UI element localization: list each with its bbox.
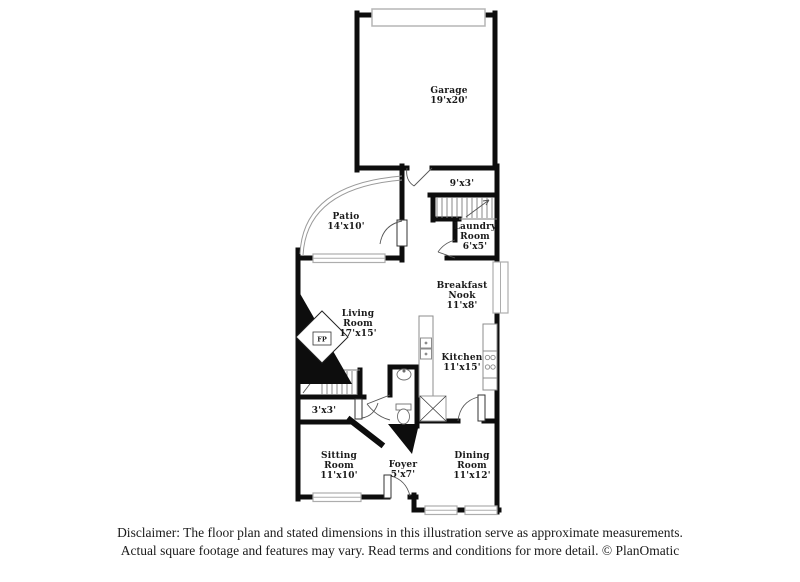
staircase-upper [437,197,497,219]
door-swing [362,403,378,418]
angled-wall-wedge [388,424,419,454]
breakfast-nook-dims: 11'x8' [447,301,478,311]
sitting-room-dims: 11'x10' [320,471,357,481]
floor-plan-page: FP [0,0,800,582]
laundry-label-1: Laundry [454,222,497,232]
door-leaf [397,220,407,246]
door-leaf [355,399,362,419]
dining-room-dims: 11'x12' [453,471,490,481]
door-leaf [478,395,485,421]
floor-plan: FP [0,0,800,522]
door-swing [367,395,390,420]
foyer-label: Foyer [389,460,418,470]
living-room-label-2: Room [343,319,373,329]
door-swing [458,397,478,421]
stove-icon [483,351,497,378]
stairs-arrow [466,200,489,217]
patio-label: Patio [333,212,360,222]
kitchen-dims: 11'x15' [443,363,480,373]
disclaimer-line-1: Disclaimer: The floor plan and stated di… [0,524,800,542]
living-room-label-1: Living [342,309,375,319]
disclaimer-line-2: Actual square footage and features may v… [0,542,800,560]
sitting-room-label-2: Room [324,461,354,471]
sitting-room-label-1: Sitting [321,451,357,461]
fireplace-label: FP [317,336,327,344]
dining-room-label-1: Dining [454,451,490,461]
breakfast-nook-label-2: Nook [448,291,476,301]
floor-plan-canvas: FP [0,0,800,522]
disclaimer: Disclaimer: The floor plan and stated di… [0,524,800,559]
upper-hall-dims: 9'x3' [450,179,474,189]
laundry-label-2: Room [460,232,490,242]
breakfast-nook-label-1: Breakfast [437,281,489,291]
garage-dims: 19'x20' [430,96,467,106]
door-swing [438,240,455,258]
garage-label: Garage [430,86,467,96]
laundry-dims: 6'x5' [463,242,487,252]
patio-dims: 14'x10' [327,222,364,232]
closet-dims: 3'x3' [312,406,336,416]
angled-wall [350,420,381,444]
kitchen-label: Kitchen [441,353,482,363]
toilet-icon [398,409,410,424]
foyer-dims: 5'x7' [391,470,415,480]
door-swing [407,168,432,186]
garage-door [372,9,485,26]
bathroom-fixtures [396,369,411,424]
dining-room-label-2: Room [457,461,487,471]
living-room-dims: 17'x15' [339,329,376,339]
